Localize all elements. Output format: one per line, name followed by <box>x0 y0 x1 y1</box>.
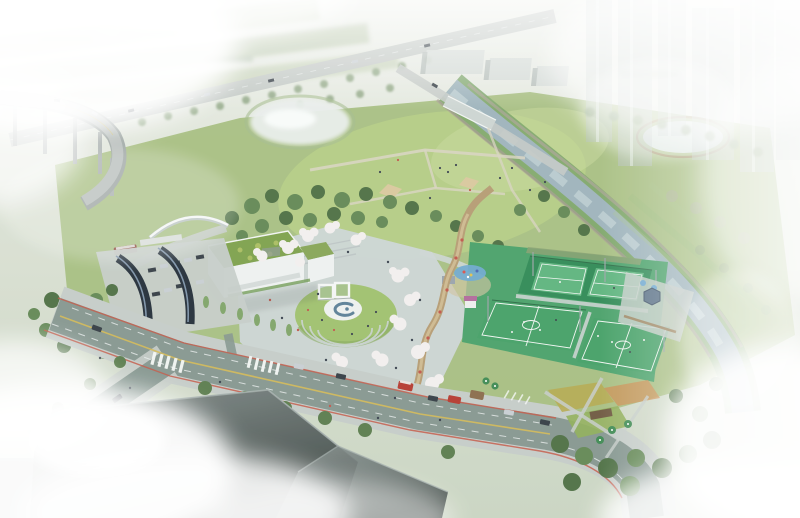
rendering-canvas <box>0 0 800 518</box>
fog <box>0 0 800 518</box>
park-masterplan-rendering: Aerial architectural rendering of a rive… <box>0 0 800 518</box>
